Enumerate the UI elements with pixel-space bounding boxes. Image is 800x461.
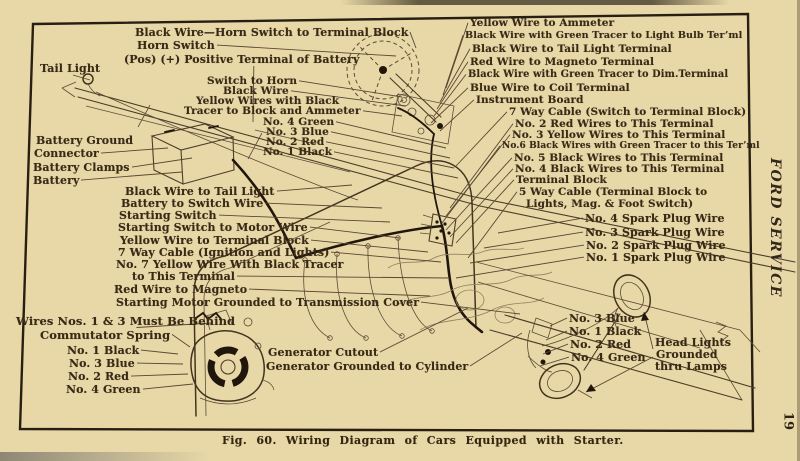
diagram-label: Black Wire to Tail Light Terminal [472,43,672,55]
diagram-label: Connector [34,147,99,160]
diagram-label: No. 2 Red [570,338,631,351]
diagram-label: Generator Grounded to Cylinder [266,360,468,373]
margin-title: FORD SERVICE [767,158,783,298]
diagram-label: No. 3 Yellow Wires to This Terminal [512,129,725,141]
diagram-label: Black Wire with Green Tracer to Light Bu… [465,30,742,41]
diagram-label: No.6 Black Wires with Green Tracer to th… [502,141,760,151]
diagram-label: Yellow Wire to Ammeter [470,17,614,29]
diagram-label: No. 4 Spark Plug Wire [585,212,725,225]
diagram-label: Blue Wire to Coil Terminal [470,82,630,94]
label-layer: Black Wire—Horn Switch to Terminal Block… [0,0,800,461]
diagram-label: thru Lamps [655,360,727,373]
diagram-label: No. 2 Red [68,370,129,383]
diagram-label: Tail Light [40,62,100,75]
diagram-label: Wires Nos. 1 & 3 Must Be Behind [16,314,235,328]
diagram-label: Terminal Block [516,174,607,186]
diagram-label: No. 1 Black [569,325,641,338]
diagram-label: Battery Clamps [33,161,130,174]
diagram-label: Instrument Board [476,94,584,106]
diagram-label: No. 1 Black [67,344,139,357]
book-page: Black Wire—Horn Switch to Terminal Block… [0,0,800,461]
diagram-label: Generator Cutout [268,346,378,359]
diagram-label: No. 4 Green [66,383,141,396]
figure-caption: Fig. 60. Wiring Diagram of Cars Equipped… [222,434,624,447]
diagram-label: Black Wire—Horn Switch to Terminal Block [135,26,408,39]
diagram-label: No. 1 Black [263,146,332,158]
diagram-label: Battery Ground [36,134,133,147]
diagram-label: No. 3 Spark Plug Wire [585,226,725,239]
diagram-label: Red Wire to Magneto Terminal [470,56,654,68]
diagram-label: (Pos) (+) Positive Terminal of Battery [124,53,360,66]
diagram-label: 5 Way Cable (Terminal Block to [519,186,707,198]
diagram-label: Commutator Spring [40,328,170,342]
diagram-label: Red Wire to Magneto [114,283,247,296]
diagram-label: Horn Switch [137,39,215,52]
diagram-label: 7 Way Cable (Switch to Terminal Block) [509,106,746,118]
page-number: 19 [781,412,796,430]
diagram-label: to This Terminal [132,270,235,283]
diagram-label: Starting Switch to Motor Wire [118,221,308,234]
diagram-label: No. 3 Blue [569,312,635,325]
diagram-label: Lights, Mag. & Foot Switch) [526,198,693,210]
diagram-label: No. 1 Spark Plug Wire [586,251,726,264]
diagram-label: No. 4 Green [571,351,646,364]
diagram-label: Starting Motor Grounded to Transmission … [116,296,419,309]
diagram-label: No. 3 Blue [69,357,135,370]
diagram-label: Black Wire with Green Tracer to Dim.Term… [468,69,728,80]
diagram-label: Battery [33,174,79,187]
